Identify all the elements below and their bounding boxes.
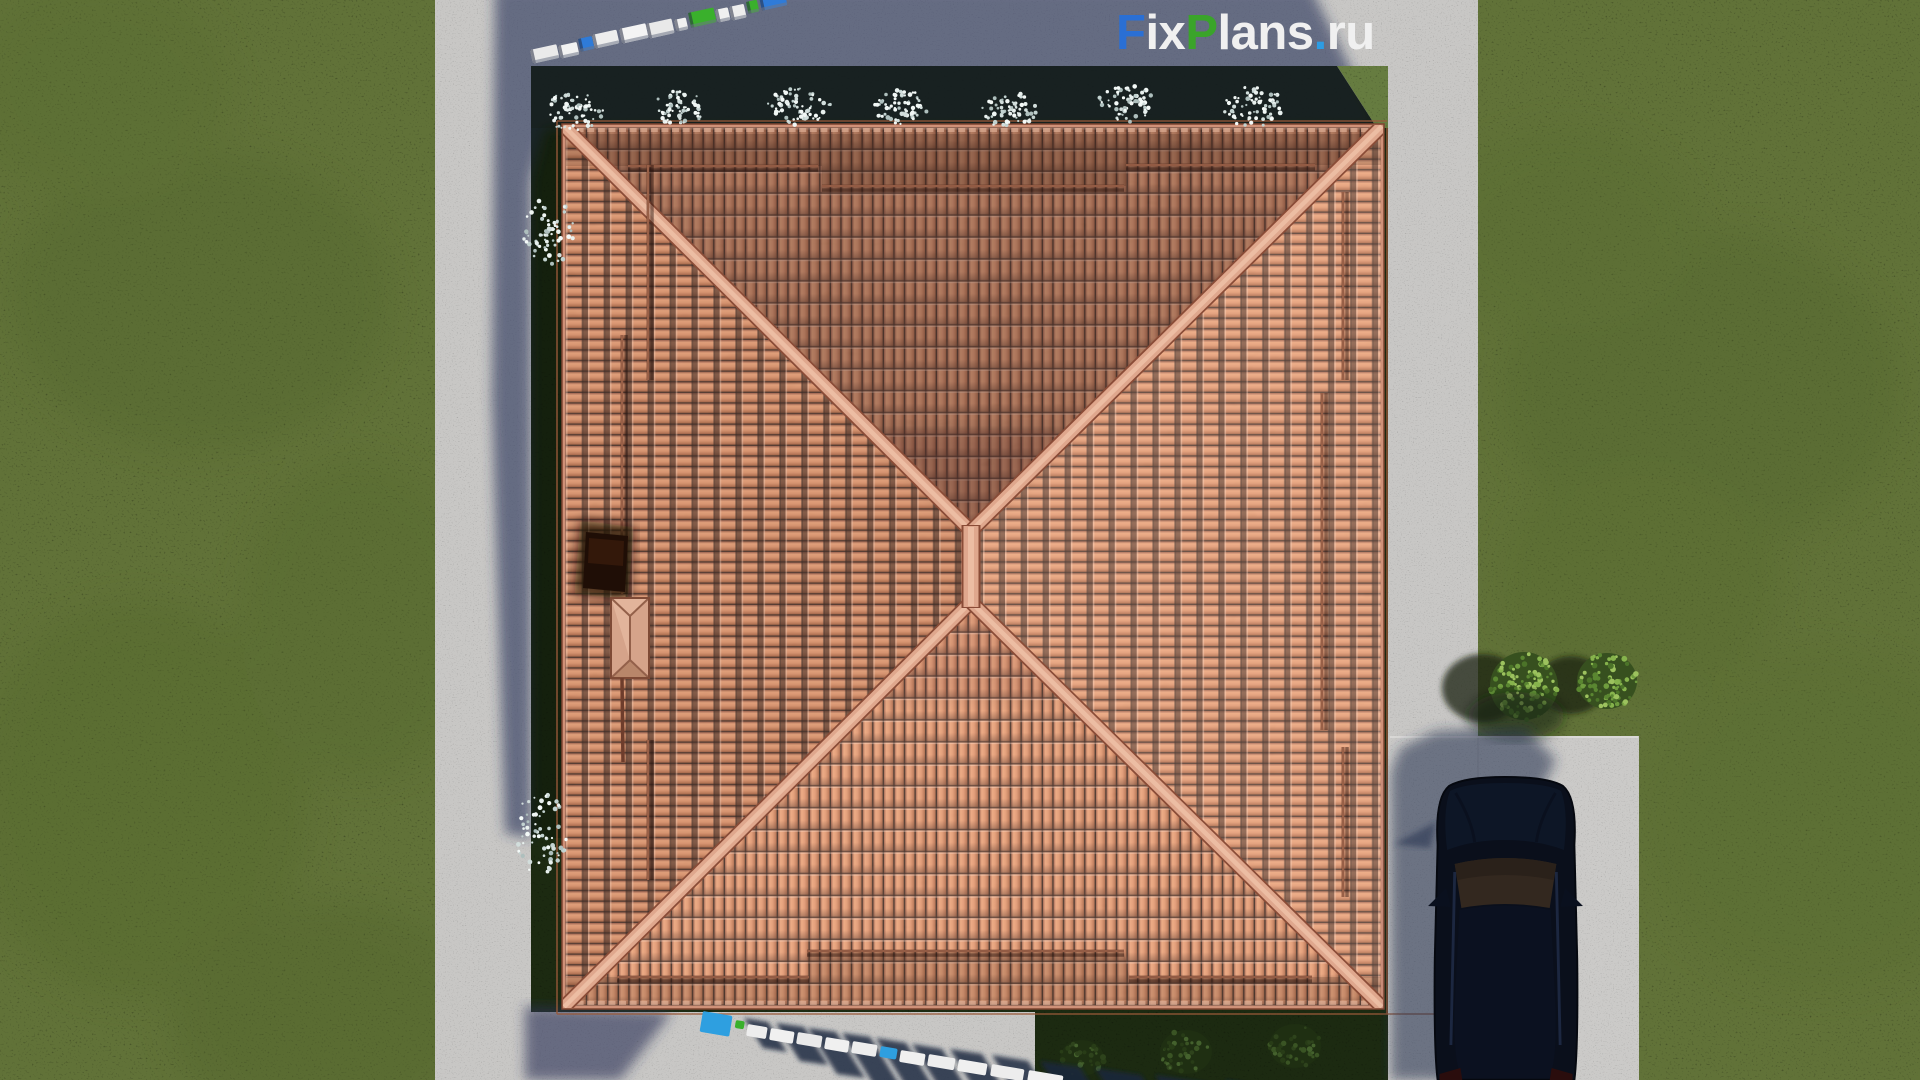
svg-text:FixPlans.ru: FixPlans.ru [1116,6,1375,60]
